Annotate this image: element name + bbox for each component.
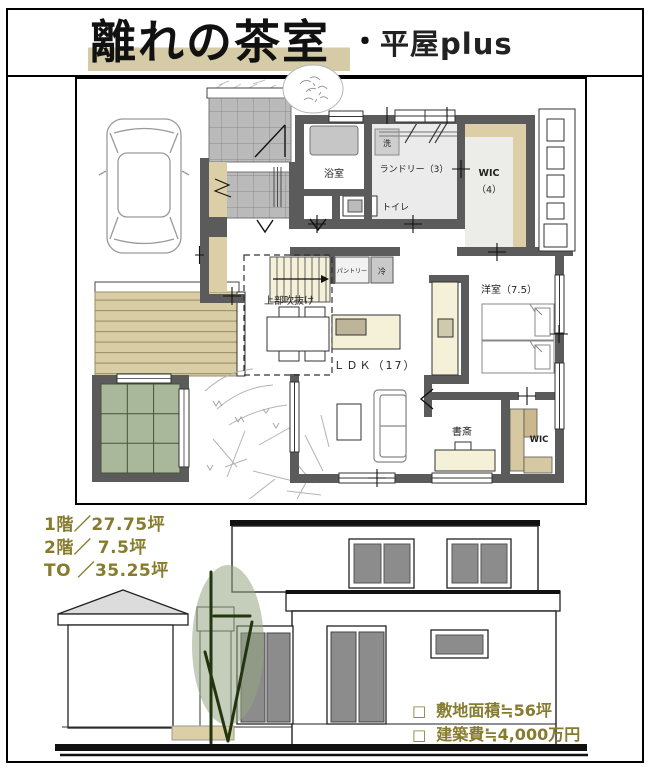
area-stats: 1階／27.75坪 2階／ 7.5坪 TO ／35.25坪 <box>44 514 169 583</box>
bedroom-label: 洋室（7.5） <box>481 283 537 296</box>
checkbox-icon: □ <box>412 699 426 723</box>
notes: □ 敷地面積≒56坪 □ 建築費≒4,000万円 <box>412 699 580 747</box>
title-sub: 平屋plus <box>380 27 513 61</box>
checkbox-icon: □ <box>412 723 426 747</box>
toilet-label: トイレ <box>382 203 409 213</box>
note-build-cost-label: 建築費≒4,000万円 <box>436 723 580 747</box>
note-site-area-label: 敷地面積≒56坪 <box>436 699 552 723</box>
island-counter <box>332 315 400 349</box>
wic-upper-size-label: （4） <box>476 184 501 196</box>
flyer-page: 離れの茶室・平屋plus <box>0 0 650 767</box>
fridge-label: 冷 <box>378 266 386 276</box>
study-label: 書斎 <box>452 425 472 438</box>
floor-plan-panel: 浴室 洗 ランドリー（3） WIC （4） トイレ 上部吹抜け パントリー 冷 … <box>75 77 587 505</box>
ldk-label: ＬＤＫ（17） <box>334 359 417 372</box>
stat-floor2: 2階／ 7.5坪 <box>44 537 169 560</box>
title-separator: ・ <box>350 25 380 60</box>
sofa <box>374 390 406 462</box>
genkan <box>209 162 227 292</box>
wic-lower-label: WIC <box>530 435 549 445</box>
kitchen-counter <box>432 282 458 375</box>
void-label: 上部吹抜け <box>264 294 314 307</box>
shrub-sketch <box>280 62 346 116</box>
dining-table <box>267 307 329 361</box>
exterior-shelf <box>539 109 575 251</box>
note-site-area: □ 敷地面積≒56坪 <box>412 699 580 723</box>
coffee-table <box>337 404 361 440</box>
car-icon <box>99 119 189 253</box>
laundry-label: ランドリー（3） <box>380 164 449 175</box>
stat-total: TO ／35.25坪 <box>44 560 169 583</box>
eave <box>286 590 560 611</box>
tea-room <box>92 374 189 482</box>
bath-label: 浴室 <box>324 167 344 180</box>
small-window <box>431 630 488 658</box>
beds <box>482 304 554 373</box>
annex-building <box>58 590 188 728</box>
stat-floor1: 1階／27.75坪 <box>44 514 169 537</box>
wic-upper-label: WIC <box>479 168 500 179</box>
study-desk <box>435 442 495 471</box>
pantry-label: パントリー <box>337 268 367 275</box>
washer-label: 洗 <box>383 138 391 148</box>
note-build-cost: □ 建築費≒4,000万円 <box>412 723 580 747</box>
floor-plan-drawing: 浴室 洗 ランドリー（3） WIC （4） トイレ 上部吹抜け パントリー 冷 … <box>77 79 581 499</box>
